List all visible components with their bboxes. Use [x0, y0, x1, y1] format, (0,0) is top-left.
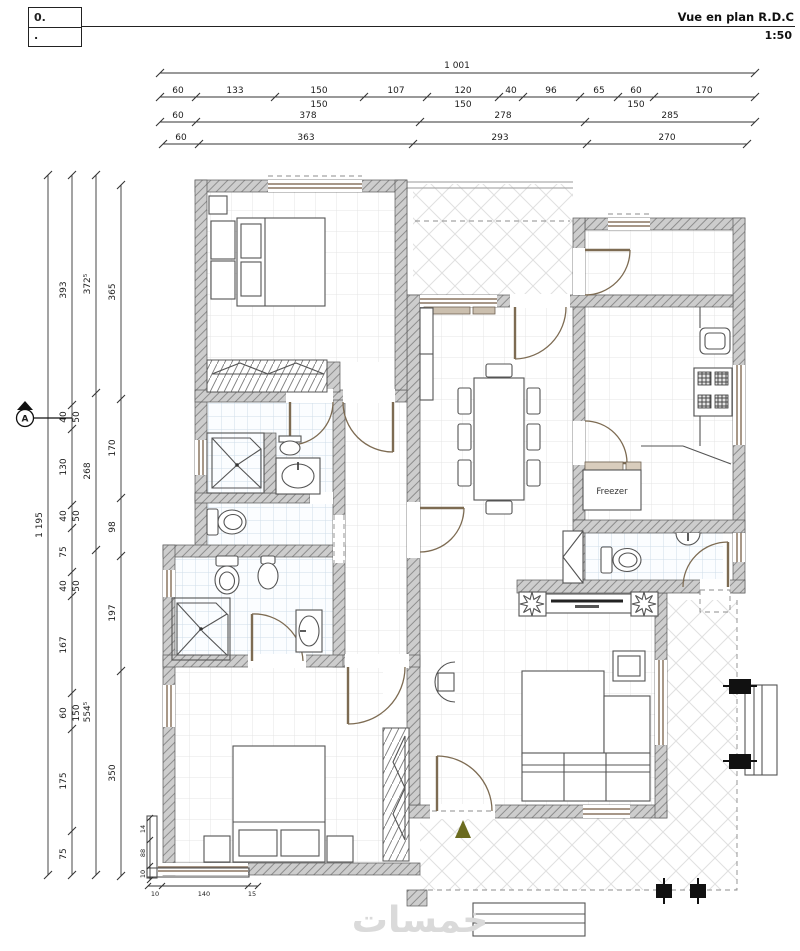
freezer: Freezer [583, 462, 641, 510]
dim-label: 170 [108, 439, 118, 456]
dim-sublabel: 50 [72, 510, 82, 522]
dim-label: 554⁵ [83, 701, 93, 722]
drawing-title: Vue en plan R.D.C [678, 10, 794, 24]
toilet-bath2 [215, 556, 239, 594]
window-living-east [655, 660, 667, 745]
dim-label: 175 [59, 772, 69, 789]
dim-label: 285 [661, 111, 678, 121]
dim-label: 14 [139, 825, 147, 833]
dim-label: 270 [658, 133, 675, 143]
dim-label: 60 [59, 707, 69, 719]
dim-label: 15 [248, 890, 256, 898]
dim-label: 140 [198, 890, 210, 898]
dim-label: 363 [297, 133, 314, 143]
window-bath1-left [195, 440, 207, 475]
dim-label: 378 [299, 111, 316, 121]
dim-label: 130 [59, 458, 69, 475]
dim-label: 150 [310, 86, 327, 96]
exterior-steps [473, 903, 585, 936]
bidet-bath2 [258, 556, 278, 589]
dim-label: 167 [59, 636, 69, 653]
kitchen-stove [694, 368, 732, 416]
window-living-south [583, 805, 630, 818]
watermark: خمسات [352, 900, 488, 941]
dim-label: 120 [454, 86, 471, 96]
dim-label: 350 [108, 764, 118, 781]
dim-label: 293 [491, 133, 508, 143]
drawing-ref-box: 0. . [28, 7, 82, 47]
ref-number: 0. [29, 8, 81, 28]
dim-label: 40 [59, 510, 69, 522]
freezer-label: Freezer [596, 487, 628, 497]
dim-sublabel: 150 [310, 100, 327, 110]
planter-left [519, 592, 546, 616]
drawing-scale: 1:50 [765, 29, 792, 42]
toilet-wc [601, 547, 641, 573]
dim-sublabel: 150 [627, 100, 644, 110]
vanity-basin-bath1 [276, 458, 320, 494]
window-wc-right [733, 533, 745, 562]
dim-label: 65 [593, 86, 604, 96]
hand-basin-bath1 [279, 436, 301, 455]
dim-label: 98 [108, 521, 118, 533]
dim-label: 278 [494, 111, 511, 121]
basin-bath2 [296, 610, 322, 652]
window-bath2-left [163, 570, 175, 597]
side-table [613, 651, 645, 681]
dim-label: 88 [139, 849, 147, 857]
dining-table [474, 378, 524, 500]
dim-label: 393 [59, 281, 69, 298]
wardrobe-bedroom2 [383, 728, 409, 861]
dim-label: 197 [108, 604, 118, 621]
window-kitchen-right [733, 365, 745, 445]
planter-right [631, 592, 658, 616]
dim-sublabel: 150 [454, 100, 471, 110]
dim-label: 372⁵ [83, 273, 93, 294]
window-bedroom1-top [268, 176, 362, 192]
titlebar-rule [81, 26, 795, 27]
dim-label: 133 [226, 86, 243, 96]
window-top-right-room [608, 214, 650, 230]
dimension-chain-top: 1 001 60 133 150 107 120 40 96 65 60 170… [156, 61, 759, 148]
dim-label: 60 [172, 86, 184, 96]
dimension-chain-left: 1 195 393 40 50 130 40 50 75 40 50 167 6… [35, 171, 125, 880]
dim-label: 10 [151, 890, 159, 898]
tv-console [541, 594, 633, 613]
dim-label: 40 [59, 411, 69, 423]
dim-label: 96 [545, 86, 557, 96]
cabinet-wc [563, 531, 583, 583]
dim-label: 75 [59, 546, 69, 557]
dim-label: 170 [695, 86, 712, 96]
dim-label: 10 [139, 870, 147, 878]
floor-plan-sheet: 0. . Vue en plan R.D.C 1:50 [0, 0, 800, 951]
dim-label: 107 [387, 86, 404, 96]
kitchen-sink [700, 328, 730, 354]
toilet-bath1 [207, 509, 246, 535]
wardrobe-bedroom1 [207, 360, 327, 392]
dim-label: 1 195 [35, 512, 45, 538]
dim-label: 40 [59, 580, 69, 592]
dim-label: 60 [630, 86, 642, 96]
dim-sublabel: 150 [72, 704, 82, 721]
dim-label: 60 [172, 111, 184, 121]
dim-sublabel: 50 [72, 580, 82, 592]
dim-sublabel: 50 [72, 411, 82, 423]
window-bedroom2-left [163, 685, 175, 727]
dim-label: 60 [175, 133, 187, 143]
bedroom1-furniture [207, 196, 327, 392]
floor-plan-canvas: Freezer [0, 0, 800, 951]
dim-label: 268 [83, 462, 93, 479]
section-marker-letter: A [22, 415, 29, 425]
ref-revision: . [29, 28, 81, 45]
dim-label: 75 [59, 848, 69, 859]
dim-label: 1 001 [444, 61, 470, 71]
dim-label: 40 [505, 86, 517, 96]
dim-label: 365 [108, 283, 118, 300]
